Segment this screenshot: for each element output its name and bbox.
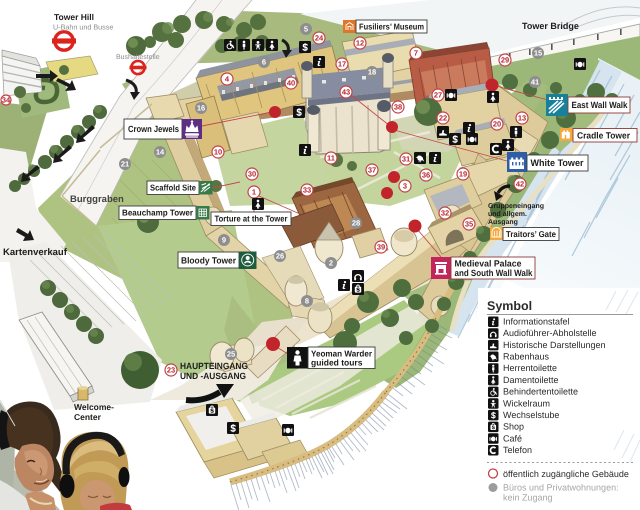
svg-text:Behindertentoilette: Behindertentoilette	[503, 387, 578, 397]
svg-text:Café: Café	[503, 433, 522, 443]
svg-text:Wechselstube: Wechselstube	[503, 410, 559, 420]
svg-text:Wickelraum: Wickelraum	[503, 398, 550, 408]
svg-text:Historische Darstellungen: Historische Darstellungen	[503, 340, 606, 350]
svg-text:Bushaltestelle: Bushaltestelle	[116, 53, 160, 61]
svg-text:15: 15	[534, 49, 542, 58]
svg-text:Center: Center	[74, 412, 102, 422]
svg-text:Cradle Tower: Cradle Tower	[577, 131, 630, 141]
svg-text:Damentoilette: Damentoilette	[503, 375, 559, 385]
svg-text:Scaffold Site: Scaffold Site	[150, 183, 196, 193]
svg-text:7: 7	[414, 49, 418, 58]
svg-text:26: 26	[276, 252, 284, 261]
svg-text:Audioführer-Abholstelle: Audioführer-Abholstelle	[503, 328, 597, 338]
svg-text:Traitors’ Gate: Traitors’ Gate	[506, 229, 556, 239]
svg-text:2: 2	[329, 259, 333, 268]
svg-text:14: 14	[156, 148, 165, 157]
svg-text:36: 36	[422, 171, 430, 180]
svg-text:Beauchamp Tower: Beauchamp Tower	[122, 208, 194, 218]
svg-text:Ausgang: Ausgang	[488, 219, 518, 226]
svg-text:16: 16	[197, 104, 205, 113]
svg-text:5: 5	[304, 25, 308, 34]
svg-text:39: 39	[377, 243, 385, 252]
svg-text:kein Zugang: kein Zugang	[503, 493, 553, 503]
svg-text:19: 19	[459, 170, 467, 179]
svg-text:UND -AUSGANG: UND -AUSGANG	[180, 371, 246, 381]
svg-text:13: 13	[518, 114, 526, 123]
svg-text:10: 10	[214, 148, 222, 157]
svg-text:12: 12	[356, 39, 364, 48]
svg-text:28: 28	[352, 219, 360, 228]
svg-text:Welcome-: Welcome-	[74, 402, 114, 412]
svg-text:17: 17	[338, 60, 346, 69]
svg-text:18: 18	[368, 68, 376, 77]
svg-text:25: 25	[227, 350, 235, 359]
svg-text:41: 41	[531, 78, 539, 87]
svg-text:Medieval Palace: Medieval Palace	[455, 259, 522, 269]
svg-text:37: 37	[368, 166, 376, 175]
svg-text:Tower Hill: Tower Hill	[54, 12, 94, 22]
svg-text:8: 8	[305, 297, 309, 306]
svg-text:34: 34	[2, 96, 11, 105]
svg-text:24: 24	[315, 34, 324, 43]
svg-text:32: 32	[441, 209, 449, 218]
svg-text:22: 22	[439, 114, 447, 123]
svg-text:Bloody Tower: Bloody Tower	[181, 256, 236, 266]
svg-text:Herrentoilette: Herrentoilette	[503, 363, 557, 373]
svg-text:and South Wall Walk: and South Wall Walk	[455, 268, 534, 278]
svg-text:35: 35	[465, 220, 473, 229]
svg-text:38: 38	[394, 103, 402, 112]
svg-text:öffentlich zugängliche Gebäude: öffentlich zugängliche Gebäude	[503, 469, 629, 479]
svg-text:43: 43	[342, 88, 350, 97]
svg-text:guided tours: guided tours	[311, 358, 363, 368]
svg-text:29: 29	[501, 56, 509, 65]
svg-text:HAUPTEINGANG: HAUPTEINGANG	[180, 361, 248, 371]
svg-text:23: 23	[167, 366, 175, 375]
svg-text:1: 1	[252, 188, 256, 197]
svg-text:Shop: Shop	[503, 422, 524, 432]
svg-text:und allgem.: und allgem.	[488, 210, 527, 218]
svg-text:Tower Bridge: Tower Bridge	[522, 21, 579, 31]
svg-text:Kartenverkauf: Kartenverkauf	[3, 247, 68, 258]
svg-text:33: 33	[303, 186, 311, 195]
svg-text:6: 6	[262, 58, 266, 67]
svg-text:Burggraben: Burggraben	[70, 194, 124, 205]
svg-text:42: 42	[516, 180, 524, 189]
svg-text:27: 27	[434, 91, 442, 100]
svg-text:31: 31	[402, 155, 410, 164]
svg-text:40: 40	[287, 79, 295, 88]
svg-text:White Tower: White Tower	[531, 158, 584, 169]
svg-text:Symbol: Symbol	[487, 299, 532, 313]
svg-text:Fusiliers’ Museum: Fusiliers’ Museum	[359, 22, 424, 32]
svg-text:Gruppeneingang: Gruppeneingang	[488, 202, 544, 210]
svg-text:Informationstafel: Informationstafel	[503, 317, 570, 327]
svg-text:3: 3	[403, 182, 407, 191]
svg-text:Büros und Privatwohnungen:: Büros und Privatwohnungen:	[503, 483, 619, 493]
svg-text:Crown Jewels: Crown Jewels	[128, 124, 179, 134]
svg-text:Torture at the Tower: Torture at the Tower	[215, 214, 289, 224]
svg-text:Telefon: Telefon	[503, 445, 532, 455]
svg-text:Rabenhaus: Rabenhaus	[503, 352, 550, 362]
svg-text:11: 11	[327, 154, 335, 163]
svg-text:East Wall Walk: East Wall Walk	[572, 100, 629, 110]
svg-text:30: 30	[248, 170, 256, 179]
svg-text:U-Bahn und Busse: U-Bahn und Busse	[53, 23, 113, 32]
svg-text:21: 21	[121, 160, 129, 169]
svg-text:20: 20	[493, 120, 501, 129]
svg-text:9: 9	[222, 236, 226, 245]
